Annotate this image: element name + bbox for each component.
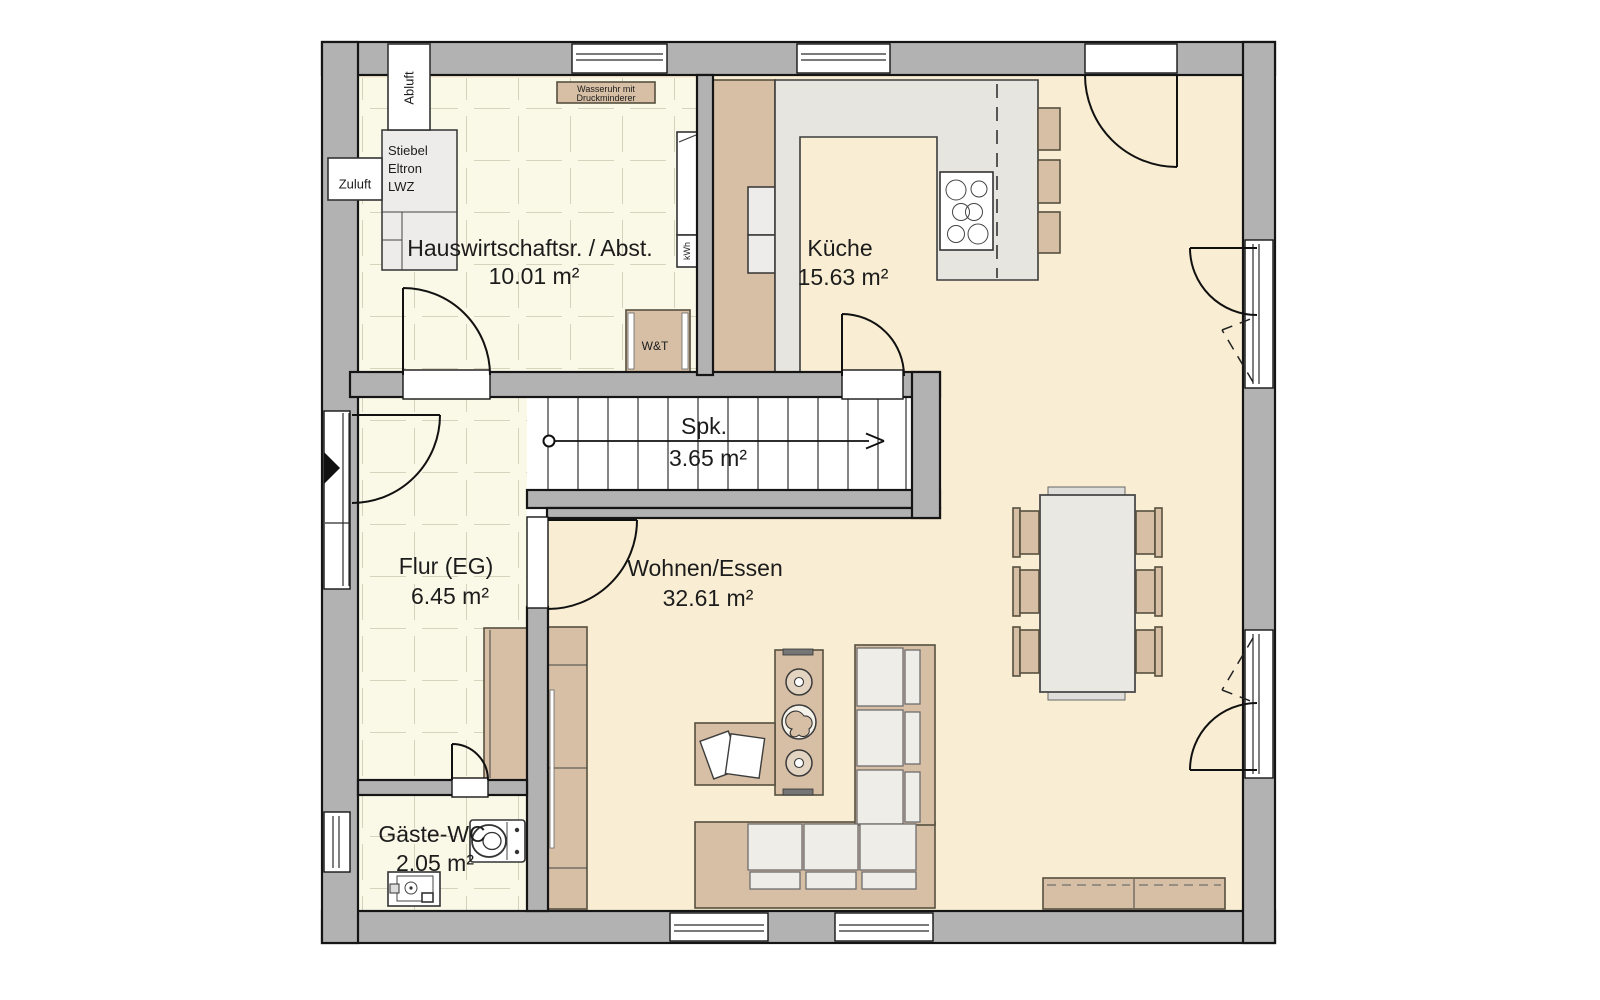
heater-label-2: Eltron xyxy=(388,161,422,176)
room-label-flur: Flur (EG) xyxy=(399,553,494,579)
room-area-spk: 3.65 m² xyxy=(669,445,747,471)
stove xyxy=(940,172,993,250)
washer-dryer-label: W&T xyxy=(642,339,669,353)
flur-cabinet xyxy=(484,628,527,780)
wall-stair-bottom xyxy=(527,490,940,508)
bar-stools xyxy=(1038,108,1060,253)
window-top-hwr xyxy=(572,44,667,73)
tall-sideboard xyxy=(548,627,587,909)
window-bottom-right xyxy=(835,913,933,941)
dining-table xyxy=(1040,495,1135,692)
room-area-kueche: 15.63 m² xyxy=(798,264,889,290)
wall-right xyxy=(1243,42,1275,943)
kitchen-appliance-upper xyxy=(748,187,775,235)
room-label-wohnen: Wohnen/Essen xyxy=(627,555,783,581)
tv-board xyxy=(775,649,823,795)
kitchen-appliance-lower xyxy=(748,235,775,273)
window-wc xyxy=(324,812,350,872)
wall-stair-bottom-ledge xyxy=(547,508,940,518)
room-area-wc: 2.05 m² xyxy=(396,850,474,876)
wall-bottom xyxy=(322,911,1275,943)
room-label-hwr: Hauswirtschaftsr. / Abst. xyxy=(407,235,652,261)
electric-meter-label: kWh xyxy=(682,242,692,260)
wall-wc-top xyxy=(358,780,527,795)
floor-plan-svg: Hauswirtschaftsr. / Abst. 10.01 m² Küche… xyxy=(0,0,1600,1000)
coffee-table xyxy=(695,723,775,785)
heater-label-1: Stiebel xyxy=(388,143,428,158)
dining-set xyxy=(1013,487,1162,700)
room-area-flur: 6.45 m² xyxy=(411,583,489,609)
water-meter-label-2: Druckminderer xyxy=(576,93,635,103)
abluft-label: Abluft xyxy=(402,71,417,105)
wall-stair-right xyxy=(912,372,940,518)
room-area-hwr: 10.01 m² xyxy=(489,263,580,289)
room-label-wc: Gäste-WC xyxy=(378,821,485,847)
window-bottom-left xyxy=(670,913,768,941)
heater-label-3: LWZ xyxy=(388,179,415,194)
wall-hwr-kitchen xyxy=(697,75,713,375)
room-label-kueche: Küche xyxy=(807,235,872,261)
magazine xyxy=(725,734,764,778)
zuluft-label: Zuluft xyxy=(339,177,372,192)
room-label-spk: Spk. xyxy=(681,413,727,439)
window-top-kitchen xyxy=(797,44,890,73)
lowboard-sideboard xyxy=(1043,878,1225,909)
wall-flur-wohnen xyxy=(527,607,548,911)
floor-plan-page: Hauswirtschaftsr. / Abst. 10.01 m² Küche… xyxy=(0,0,1600,1000)
wash-basin xyxy=(388,872,440,906)
room-area-wohnen: 32.61 m² xyxy=(663,585,754,611)
